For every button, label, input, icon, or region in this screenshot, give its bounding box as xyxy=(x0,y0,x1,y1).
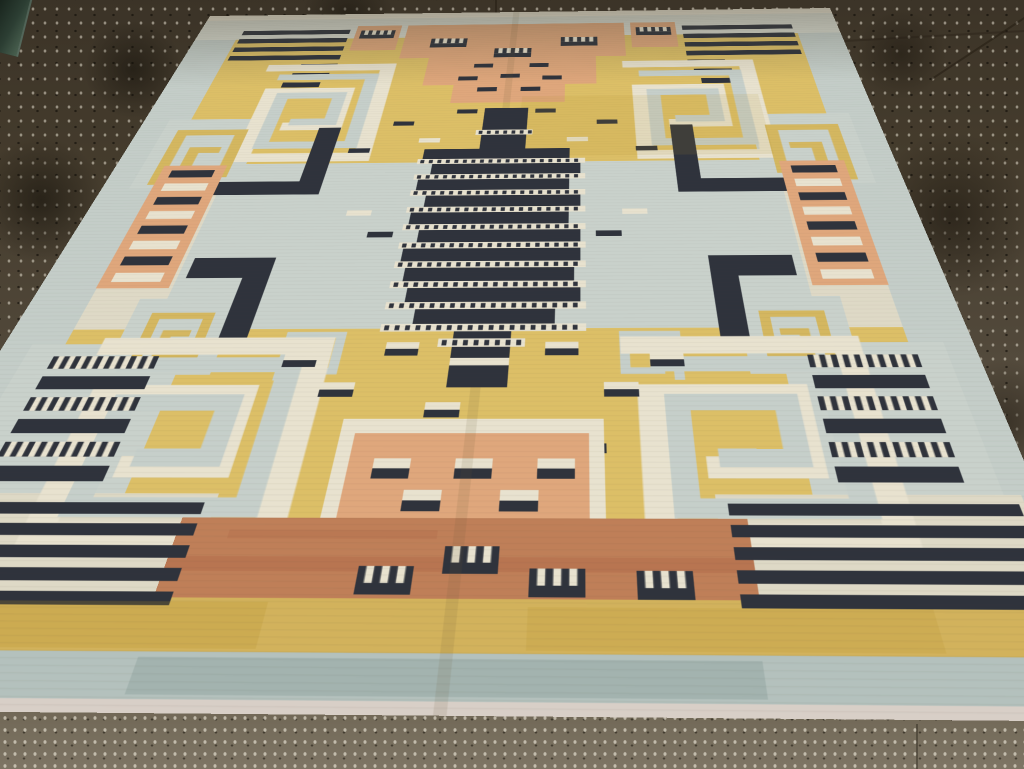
photo-scene xyxy=(0,0,1024,769)
art-deco-rug xyxy=(0,8,1024,722)
floor-grout-line xyxy=(916,724,918,769)
